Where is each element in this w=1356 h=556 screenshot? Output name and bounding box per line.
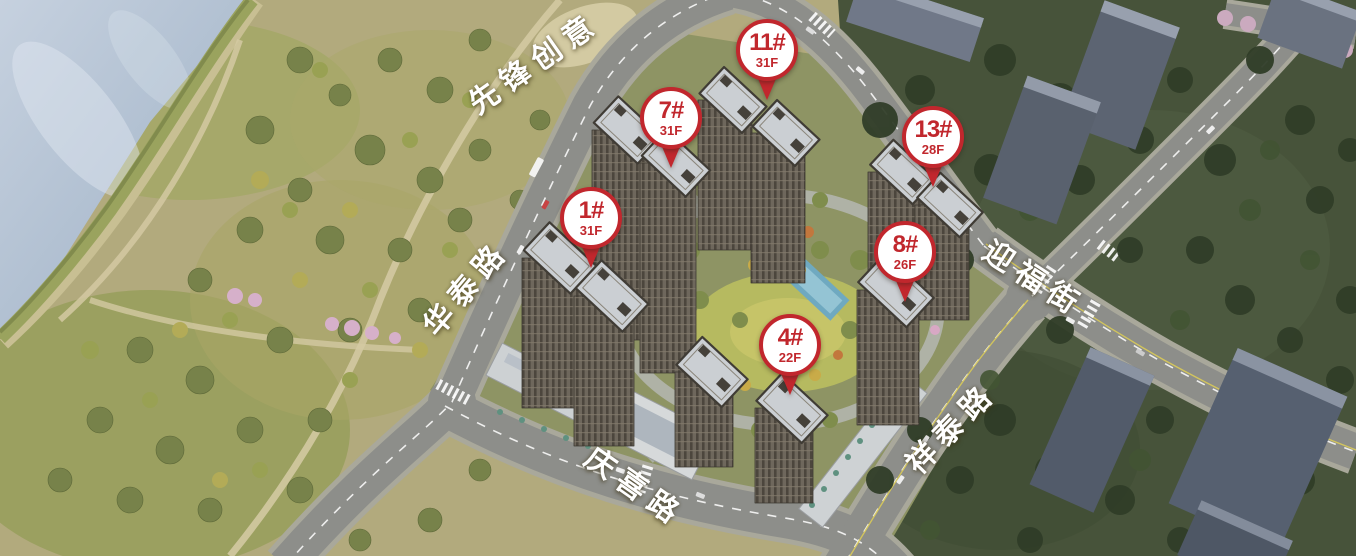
pin-head: 11# 31F [736,19,798,81]
pin-floor-count: 31F [660,123,682,138]
building-pin-7[interactable]: 7# 31F [640,87,702,168]
pin-building-number: 7# [659,99,684,123]
pin-floor-count: 22F [779,350,801,365]
pin-floor-count: 31F [580,223,602,238]
building-pin-8[interactable]: 8# 26F [874,221,936,302]
pin-floor-count: 26F [894,257,916,272]
pin-building-number: 11# [749,31,785,55]
building-pin-4[interactable]: 4# 22F [759,314,821,395]
pin-floor-count: 28F [922,142,944,157]
pin-building-number: 1# [579,199,604,223]
building-pin-11[interactable]: 11# 31F [736,19,798,100]
pin-building-number: 4# [778,326,803,350]
pin-head: 8# 26F [874,221,936,283]
pin-building-number: 13# [914,118,951,142]
building-pin-13[interactable]: 13# 28F [902,106,964,187]
site-aerial-rendering [0,0,1356,556]
pin-building-number: 8# [893,233,918,257]
pin-head: 1# 31F [560,187,622,249]
pin-head: 4# 22F [759,314,821,376]
pin-floor-count: 31F [756,55,778,70]
aerial-masterplan-view: { "pins": [ {"building": "1#", "floors":… [0,0,1356,556]
pin-head: 7# 31F [640,87,702,149]
building-pin-1[interactable]: 1# 31F [560,187,622,268]
pin-head: 13# 28F [902,106,964,168]
